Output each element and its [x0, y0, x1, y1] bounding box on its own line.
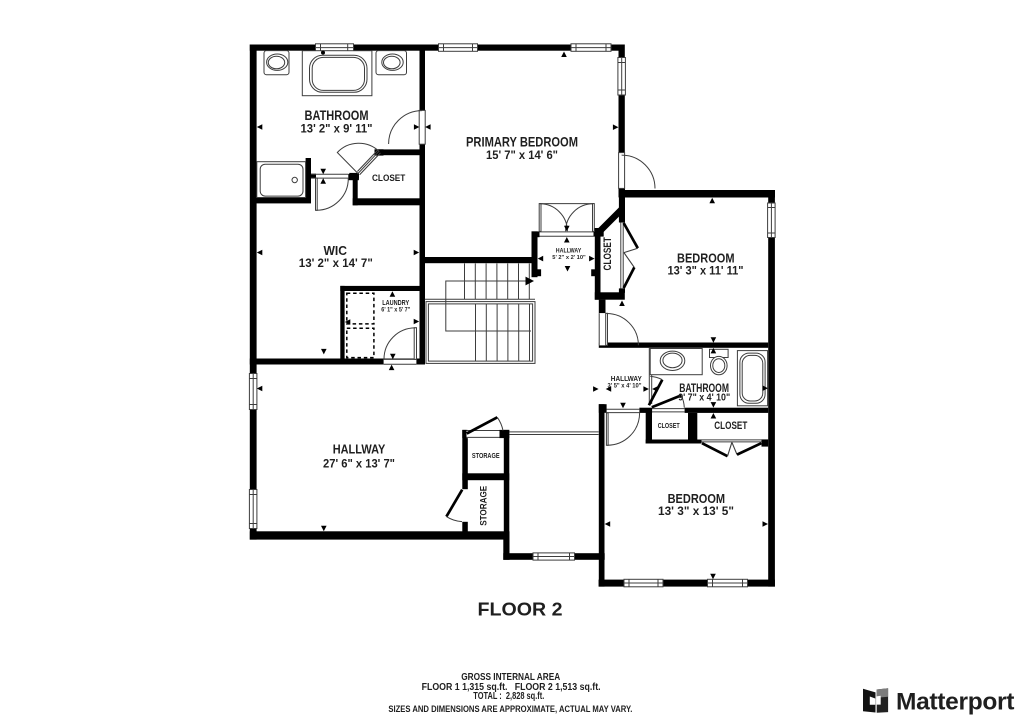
- svg-text:CLOSET: CLOSET: [372, 173, 406, 183]
- svg-text:FLOOR 2: FLOOR 2: [478, 599, 563, 619]
- svg-text:6' 1" x 5' 7": 6' 1" x 5' 7": [381, 308, 410, 314]
- svg-text:STORAGE: STORAGE: [478, 486, 489, 526]
- svg-text:27' 6" x 13' 7": 27' 6" x 13' 7": [323, 456, 395, 470]
- svg-text:13' 3" x 11' 11": 13' 3" x 11' 11": [668, 264, 744, 278]
- svg-text:5' 2" x 2' 10": 5' 2" x 2' 10": [552, 255, 586, 261]
- svg-text:3' 5" x 4' 10": 3' 5" x 4' 10": [608, 383, 642, 390]
- svg-text:STORAGE: STORAGE: [472, 451, 500, 460]
- svg-text:13' 2" x 9' 11": 13' 2" x 9' 11": [301, 121, 373, 135]
- svg-text:HALLWAY: HALLWAY: [556, 247, 582, 254]
- svg-text:Matterport: Matterport: [896, 689, 1014, 716]
- svg-text:HALLWAY: HALLWAY: [333, 442, 386, 457]
- svg-text:LAUNDRY: LAUNDRY: [382, 300, 409, 307]
- svg-text:SIZES AND DIMENSIONS ARE APPRO: SIZES AND DIMENSIONS ARE APPROXIMATE, AC…: [388, 704, 632, 714]
- svg-text:15' 7" x 14' 6": 15' 7" x 14' 6": [486, 148, 558, 162]
- svg-text:CLOSET: CLOSET: [602, 237, 614, 271]
- svg-text:TOTAL : 2,828 sq.ft.: TOTAL : 2,828 sq.ft.: [473, 691, 544, 702]
- svg-text:13' 2" x 14' 7": 13' 2" x 14' 7": [299, 256, 373, 270]
- svg-text:13' 3" x 13' 5": 13' 3" x 13' 5": [658, 504, 734, 518]
- svg-text:CLOSET: CLOSET: [658, 421, 680, 430]
- svg-text:CLOSET: CLOSET: [714, 420, 747, 432]
- svg-text:9' 7" x 4' 10": 9' 7" x 4' 10": [678, 392, 730, 403]
- svg-text:PRIMARY BEDROOM: PRIMARY BEDROOM: [466, 133, 578, 149]
